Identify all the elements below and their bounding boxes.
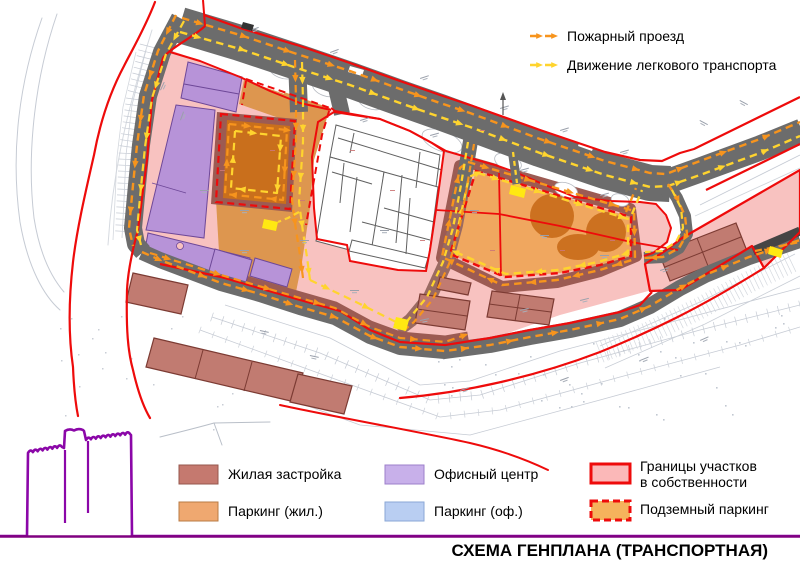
svg-text:Жилая застройка: Жилая застройка: [228, 466, 342, 482]
svg-text:в собственности: в собственности: [640, 474, 747, 490]
svg-text:Движение легкового транспорта: Движение легкового транспорта: [567, 57, 777, 73]
svg-text:Границы участков: Границы участков: [640, 458, 757, 474]
svg-text:Паркинг (жил.): Паркинг (жил.): [228, 503, 323, 519]
svg-text:Пожарный проезд: Пожарный проезд: [567, 28, 684, 44]
svg-text:Офисный центр: Офисный центр: [434, 466, 539, 482]
svg-text:Паркинг (оф.): Паркинг (оф.): [434, 503, 523, 519]
svg-text:Подземный паркинг: Подземный паркинг: [640, 501, 769, 517]
svg-text:СХЕМА ГЕНПЛАНА (ТРАНСПОРТНАЯ): СХЕМА ГЕНПЛАНА (ТРАНСПОРТНАЯ): [451, 541, 768, 560]
